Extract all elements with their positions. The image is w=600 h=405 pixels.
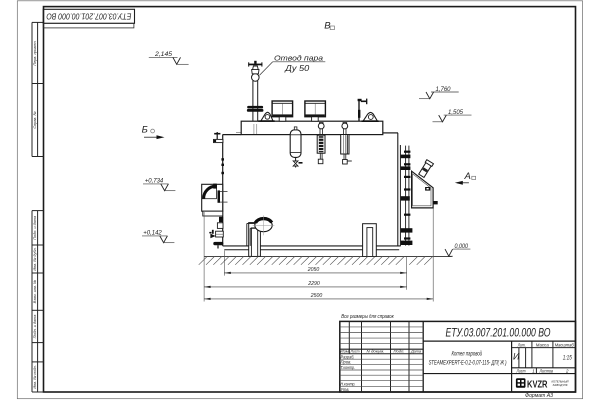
svg-text:STEAMEXPERT-Е-0,2-0,07-115- ДП: STEAMEXPERT-Е-0,2-0,07-115- ДП( Ж ) (429, 360, 507, 366)
svg-text:2050: 2050 (307, 267, 320, 273)
svg-text:Утв.: Утв. (341, 387, 350, 392)
svg-text:Лист: Лист (350, 349, 360, 354)
svg-text:Формат А3: Формат А3 (525, 393, 553, 399)
svg-text:Б: Б (142, 125, 148, 136)
svg-text:Пров.: Пров. (341, 360, 352, 365)
svg-text:Инв. № подл.: Инв. № подл. (33, 365, 37, 389)
svg-text:Подп. и дата: Подп. и дата (33, 216, 37, 240)
svg-text:А: А (464, 171, 471, 182)
svg-text:N докум.: N докум. (367, 349, 385, 354)
svg-text:Взам. инв. №: Взам. инв. № (33, 280, 37, 303)
svg-text:ЕТУ.03.007.201.00.000 ВО: ЕТУ.03.007.201.00.000 ВО (446, 326, 551, 340)
svg-text:1:15: 1:15 (563, 354, 572, 361)
svg-text:Масса: Масса (536, 342, 550, 347)
svg-text:Н.контр.: Н.контр. (341, 381, 356, 386)
svg-text:Справ. №: Справ. № (33, 111, 37, 128)
svg-text:Изм: Изм (340, 349, 349, 354)
svg-text:2: 2 (565, 368, 569, 373)
svg-text:Перв. примен.: Перв. примен. (33, 40, 37, 65)
svg-text:ЕТУ.03.007.201.00.000 ВО: ЕТУ.03.007.201.00.000 ВО (46, 12, 131, 21)
svg-text:Подп.: Подп. (394, 349, 405, 354)
svg-text:Все размеры для справок: Все размеры для справок (341, 314, 394, 320)
svg-text:2500: 2500 (310, 293, 323, 299)
svg-text:Лит.: Лит. (517, 342, 526, 347)
svg-text:KVZR: KVZR (527, 379, 548, 390)
svg-text:Подп. и дата: Подп. и дата (33, 315, 37, 339)
svg-text:И: И (513, 352, 520, 362)
svg-text:ЗАВОД РФ: ЗАВОД РФ (553, 383, 569, 387)
svg-text:Разраб.: Разраб. (341, 354, 355, 359)
svg-text:Котел паровой: Котел паровой (452, 351, 483, 358)
svg-text:2290: 2290 (307, 281, 320, 287)
svg-text:Отвод пара: Отвод пара (274, 53, 323, 62)
svg-text:Т.контр.: Т.контр. (341, 365, 356, 370)
svg-text:Ду 50: Ду 50 (284, 63, 310, 73)
svg-text:Листов: Листов (539, 368, 554, 373)
svg-text:Лист: Лист (516, 368, 526, 373)
svg-text:Масштаб: Масштаб (555, 342, 575, 347)
svg-text:Дата: Дата (410, 349, 422, 354)
svg-text:Инв. № дубл.: Инв. № дубл. (33, 247, 37, 270)
